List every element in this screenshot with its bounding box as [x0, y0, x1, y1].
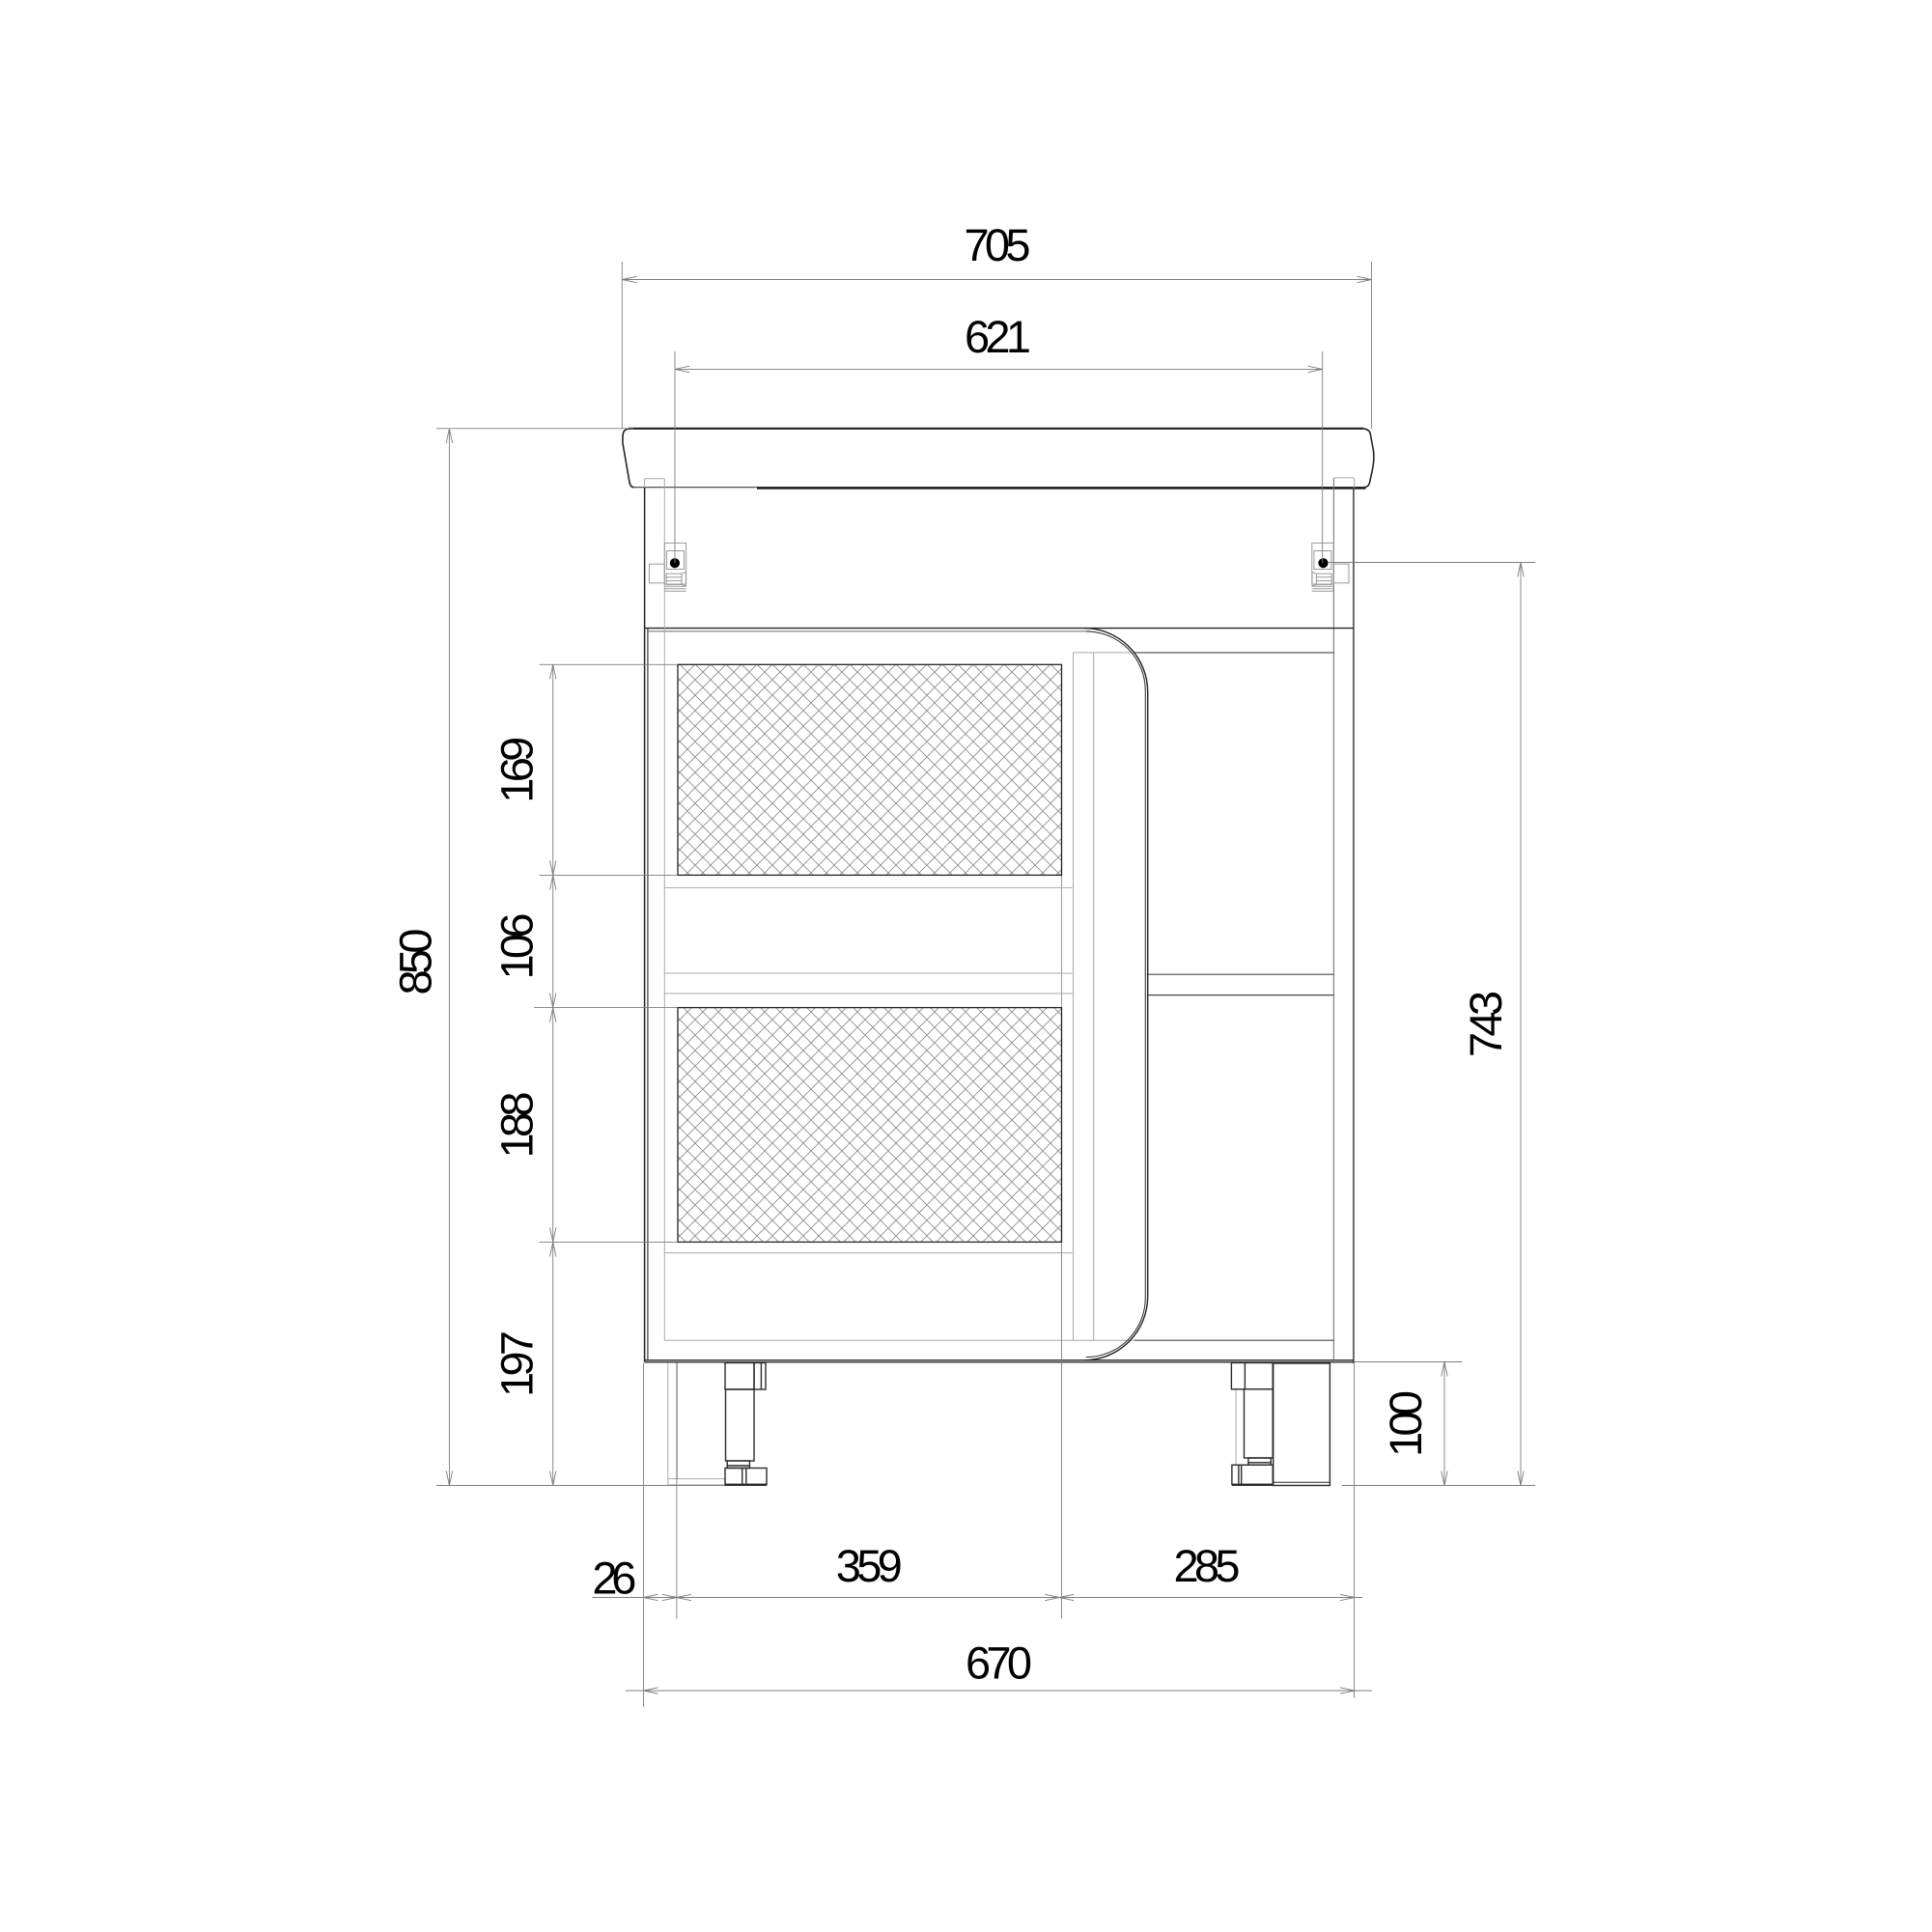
svg-text:197: 197 [491, 1330, 543, 1397]
svg-text:621: 621 [965, 311, 1031, 362]
svg-text:100: 100 [1380, 1390, 1431, 1457]
svg-text:188: 188 [491, 1092, 543, 1159]
svg-text:285: 285 [1174, 1540, 1241, 1591]
svg-text:743: 743 [1460, 991, 1511, 1057]
svg-text:670: 670 [966, 1638, 1032, 1689]
svg-text:26: 26 [592, 1553, 636, 1604]
svg-text:850: 850 [390, 929, 441, 995]
svg-text:169: 169 [491, 737, 543, 803]
svg-text:705: 705 [965, 219, 1031, 270]
svg-text:359: 359 [836, 1540, 903, 1591]
svg-text:106: 106 [491, 913, 543, 980]
